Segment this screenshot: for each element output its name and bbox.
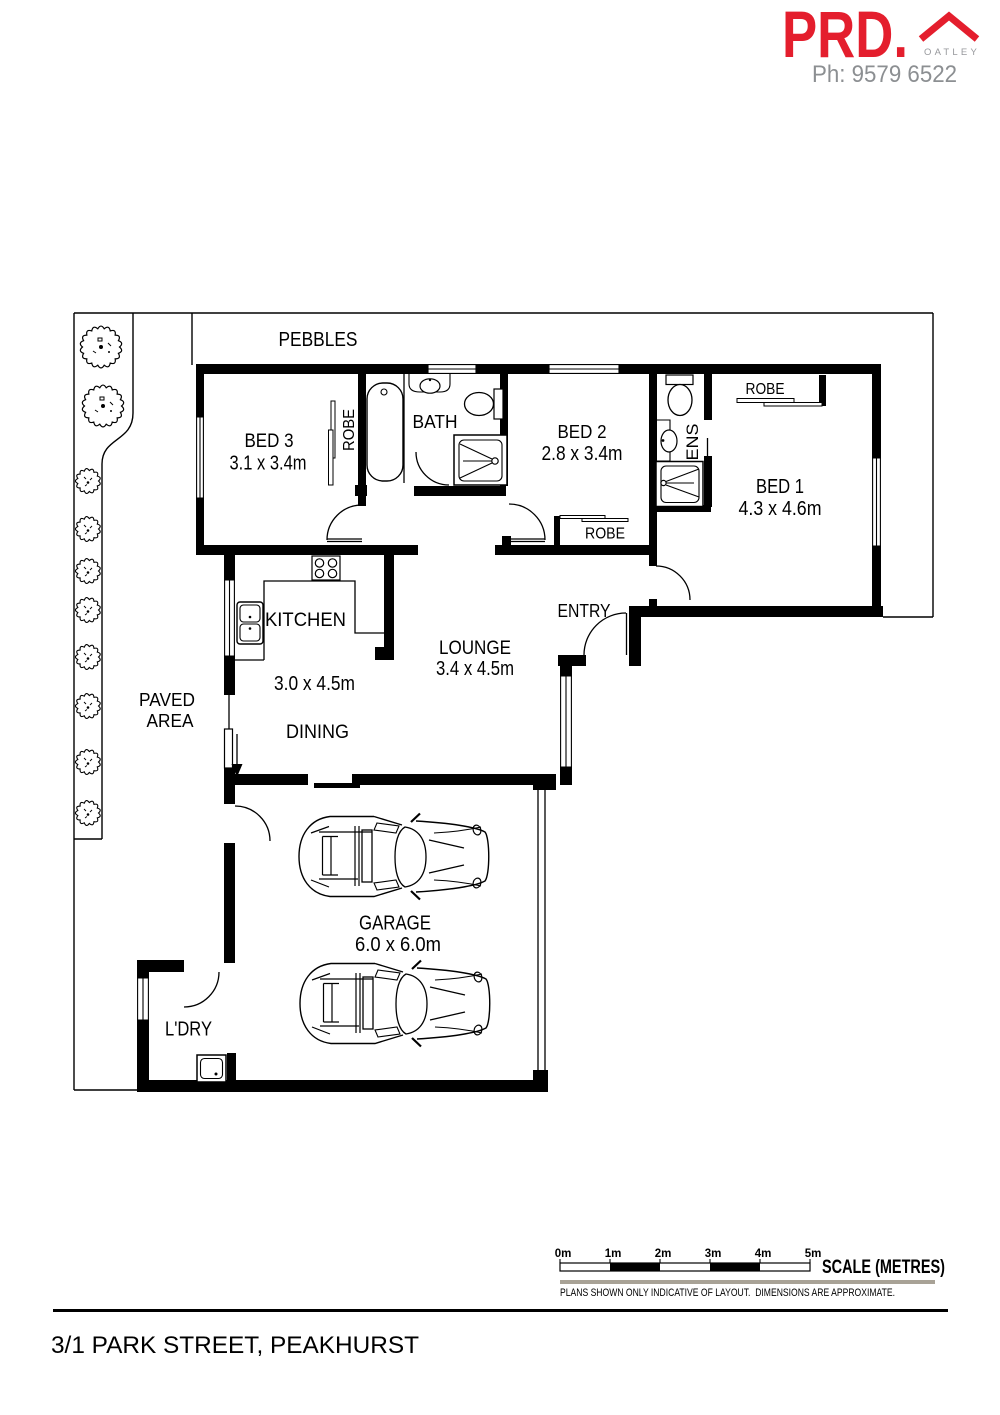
svg-text:5m: 5m	[805, 1248, 822, 1260]
svg-text:3/1 PARK STREET, PEAKHURST: 3/1 PARK STREET, PEAKHURST	[51, 1333, 419, 1359]
svg-text:6.0 x 6.0m: 6.0 x 6.0m	[355, 933, 441, 956]
svg-text:2m: 2m	[655, 1248, 672, 1260]
svg-text:KITCHEN: KITCHEN	[265, 610, 346, 631]
svg-text:PEBBLES: PEBBLES	[279, 328, 358, 351]
svg-text:1m: 1m	[605, 1248, 622, 1260]
svg-text:OATLEY: OATLEY	[924, 47, 980, 58]
svg-text:3m: 3m	[705, 1248, 722, 1260]
svg-text:BED 1: BED 1	[756, 476, 804, 498]
svg-text:3.1 x 3.4m: 3.1 x 3.4m	[230, 452, 307, 475]
svg-text:4.3 x 4.6m: 4.3 x 4.6m	[739, 497, 822, 520]
svg-text:ROBE: ROBE	[341, 409, 358, 451]
svg-text:PLANS SHOWN ONLY INDICATIVE OF: PLANS SHOWN ONLY INDICATIVE OF LAYOUT. D…	[560, 1287, 895, 1299]
svg-text:2.8 x 3.4m: 2.8 x 3.4m	[542, 442, 623, 465]
svg-text:BED 3: BED 3	[245, 430, 294, 452]
svg-text:BED 2: BED 2	[558, 422, 607, 442]
svg-text:3.0 x 4.5m: 3.0 x 4.5m	[274, 672, 355, 695]
svg-text:4m: 4m	[755, 1248, 772, 1260]
svg-text:PAVED: PAVED	[139, 690, 195, 710]
svg-text:BATH: BATH	[413, 411, 458, 432]
svg-text:LOUNGE: LOUNGE	[439, 637, 511, 659]
svg-text:3.4 x 4.5m: 3.4 x 4.5m	[436, 657, 514, 680]
svg-text:Ph: 9579 6522: Ph: 9579 6522	[812, 61, 957, 88]
svg-text:ENTRY: ENTRY	[558, 601, 611, 621]
svg-text:ROBE: ROBE	[746, 381, 785, 398]
svg-text:ROBE: ROBE	[585, 526, 625, 543]
svg-text:L'DRY: L'DRY	[165, 1019, 212, 1041]
svg-text:DINING: DINING	[286, 722, 349, 743]
svg-text:AREA: AREA	[147, 711, 194, 731]
svg-text:GARAGE: GARAGE	[359, 912, 431, 935]
svg-text:0m: 0m	[555, 1248, 572, 1260]
svg-text:SCALE (METRES): SCALE (METRES)	[822, 1257, 945, 1278]
svg-text:ENS: ENS	[684, 424, 702, 461]
